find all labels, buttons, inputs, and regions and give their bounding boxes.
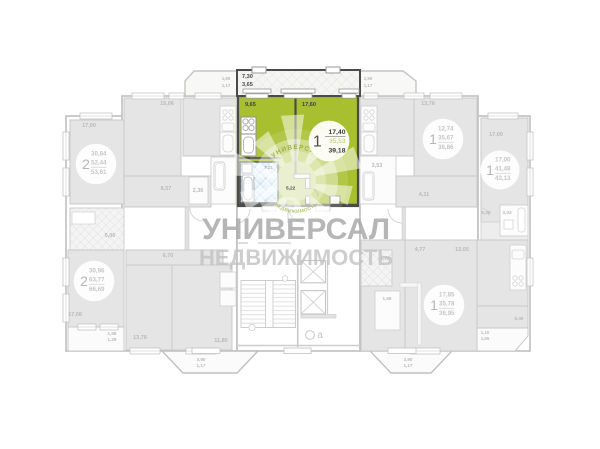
svg-text:13,76: 13,76 [133,335,147,341]
svg-text:35,53: 35,53 [329,138,346,145]
svg-text:1,17: 1,17 [404,363,413,368]
svg-text:53,61: 53,61 [91,169,107,176]
svg-text:1,65: 1,65 [481,336,490,341]
svg-text:43,13: 43,13 [495,175,511,182]
svg-text:2,36: 2,36 [193,188,204,194]
svg-text:17,85: 17,85 [439,291,455,298]
svg-text:3,65: 3,65 [242,82,253,88]
svg-text:6,70: 6,70 [163,253,174,259]
svg-text:17,00: 17,00 [489,132,503,138]
svg-text:36,86: 36,86 [438,144,454,151]
svg-text:3,90: 3,90 [404,357,413,362]
svg-text:3,90: 3,90 [197,357,206,362]
svg-text:30,96: 30,96 [89,267,105,274]
svg-text:1,90: 1,90 [222,76,231,81]
svg-text:17,08: 17,08 [68,312,82,318]
svg-text:1,98: 1,98 [383,296,392,301]
svg-text:1: 1 [429,131,437,147]
svg-text:35,67: 35,67 [438,135,454,142]
svg-text:30,84: 30,84 [91,150,107,157]
svg-text:2: 2 [82,156,90,172]
svg-text:1,10: 1,10 [481,330,490,335]
svg-text:39,18: 39,18 [328,147,345,154]
svg-text:8,57: 8,57 [161,186,172,192]
svg-text:1,29: 1,29 [108,337,117,342]
svg-text:5,06: 5,06 [105,233,116,239]
svg-text:7,30: 7,30 [242,74,253,80]
svg-text:УНИВЕРСАЛ: УНИВЕРСАЛ [202,213,390,246]
svg-text:35,78: 35,78 [439,301,455,308]
svg-text:63,77: 63,77 [89,277,105,284]
svg-text:2: 2 [80,273,88,289]
svg-text:17,60: 17,60 [302,102,316,108]
svg-text:3,53: 3,53 [372,163,383,169]
svg-text:36,95: 36,95 [439,310,455,317]
svg-text:13,76: 13,76 [421,101,435,107]
svg-text:17,00: 17,00 [82,123,96,129]
svg-text:13,05: 13,05 [455,247,469,253]
svg-text:1,17: 1,17 [197,363,206,368]
svg-text:52,44: 52,44 [91,160,107,167]
svg-text:1: 1 [486,162,494,178]
svg-text:1: 1 [313,133,322,150]
svg-text:1,17: 1,17 [222,83,231,88]
svg-text:41,48: 41,48 [495,166,511,173]
svg-text:3,03: 3,03 [502,210,512,216]
svg-text:6,36: 6,36 [515,316,524,321]
svg-text:НЕДВИЖИМОСТЬ: НЕДВИЖИМОСТЬ [199,245,393,270]
svg-text:9,65: 9,65 [245,102,256,108]
svg-text:12,74: 12,74 [438,125,454,132]
svg-text:4,11: 4,11 [419,192,429,198]
svg-text:1,58: 1,58 [108,331,117,336]
svg-text:15,06: 15,06 [160,101,174,107]
svg-text:4,77: 4,77 [415,247,426,253]
svg-text:1,17: 1,17 [364,83,373,88]
svg-text:17,00: 17,00 [495,156,511,163]
svg-text:5,22: 5,22 [286,186,296,192]
svg-text:1: 1 [430,297,438,313]
svg-text:1,90: 1,90 [364,76,373,81]
svg-text:a: a [317,330,323,341]
svg-text:66,69: 66,69 [89,286,105,293]
svg-text:17,40: 17,40 [328,129,345,136]
svg-text:5,28: 5,28 [481,210,491,216]
svg-text:11,80: 11,80 [214,338,227,344]
